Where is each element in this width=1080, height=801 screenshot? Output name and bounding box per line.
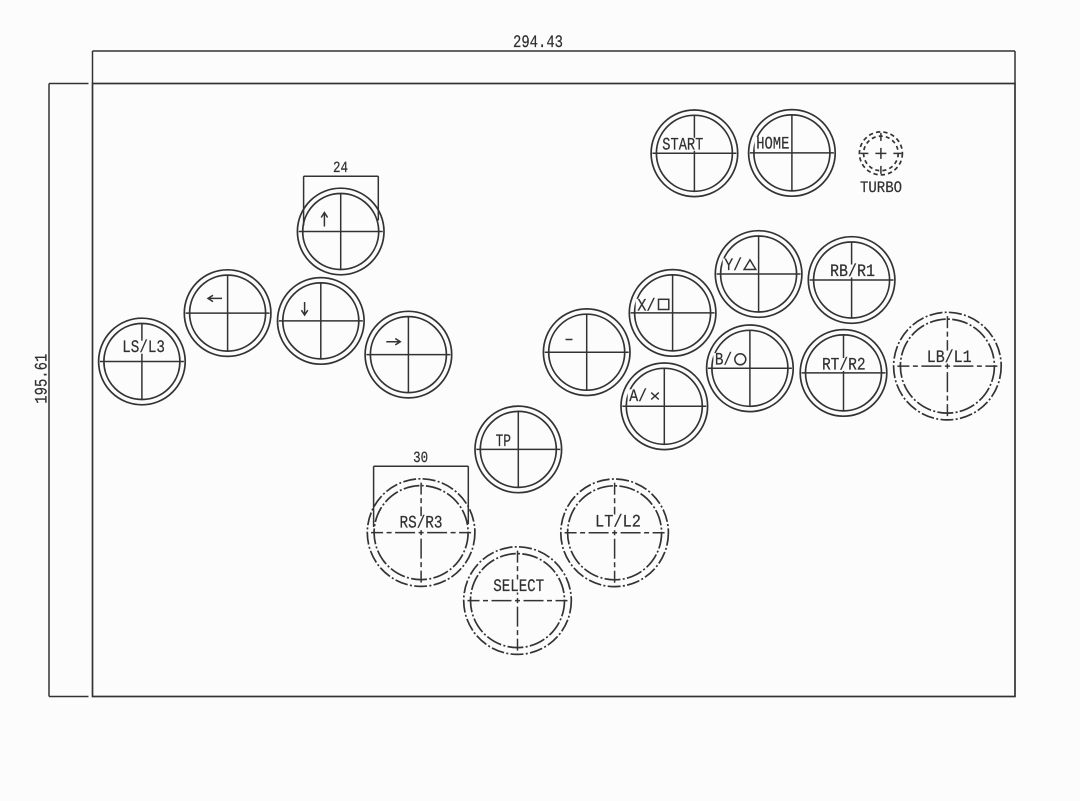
svg-text:RT/R2: RT/R2 [822, 356, 866, 376]
svg-text:A/: A/ [629, 387, 647, 407]
svg-text:HOME: HOME [756, 135, 789, 155]
svg-text:B/: B/ [715, 351, 732, 371]
svg-text:LT/L2: LT/L2 [595, 512, 641, 532]
svg-text:START: START [662, 135, 703, 155]
svg-text:TURBO: TURBO [860, 179, 902, 197]
svg-text:195.61: 195.61 [33, 354, 53, 404]
svg-text:30: 30 [413, 449, 428, 467]
svg-text:Y/: Y/ [724, 256, 742, 276]
svg-text:RS/R3: RS/R3 [400, 514, 443, 534]
svg-text:24: 24 [333, 159, 348, 177]
svg-text:TP: TP [496, 432, 511, 452]
svg-text:294.43: 294.43 [513, 33, 563, 53]
svg-text:RB/R1: RB/R1 [830, 262, 875, 282]
svg-text:LB/L1: LB/L1 [927, 348, 972, 368]
svg-text:X/: X/ [637, 296, 656, 316]
svg-text:SELECT: SELECT [493, 577, 544, 597]
svg-text:LS/L3: LS/L3 [122, 338, 165, 358]
